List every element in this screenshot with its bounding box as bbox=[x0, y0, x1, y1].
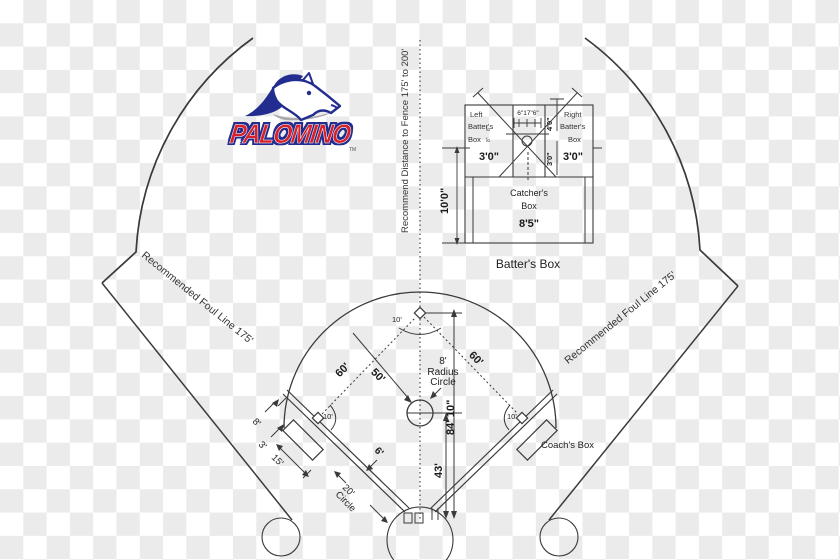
arc-10-third-label: 10' bbox=[323, 413, 333, 421]
inset-plate-ruler bbox=[514, 118, 541, 128]
dim-3ft-left-label: 3'0" bbox=[472, 152, 506, 164]
dim-3ft-right-label: 3'0" bbox=[556, 152, 590, 164]
radius-circle-label: 8' Radius Circle bbox=[420, 357, 466, 389]
horse-eye bbox=[307, 91, 311, 95]
right-batter-box-line3: Box bbox=[568, 136, 581, 144]
trademark-symbol: TM bbox=[349, 148, 356, 153]
plate-side-a-label: 8" bbox=[487, 126, 492, 131]
width-8ft5-label: 8'5" bbox=[504, 219, 554, 231]
palomino-horse-logo bbox=[243, 72, 347, 126]
baseball-field-diagram bbox=[0, 0, 840, 560]
catcher-box-line2: Box bbox=[504, 202, 554, 211]
home-batter-box-right bbox=[415, 513, 423, 523]
dim-4ft-label: 4'0" bbox=[546, 117, 554, 131]
arc-10-second-label: 10' bbox=[392, 316, 402, 324]
ondeck-circle-right bbox=[540, 518, 578, 556]
ondeck-circle-left bbox=[262, 518, 300, 556]
plate-widths-label: 6"17"6" bbox=[511, 111, 545, 118]
inset-plate-circle bbox=[522, 136, 532, 146]
plate-side-b-label: 8" bbox=[487, 137, 492, 142]
home-batter-box-left bbox=[404, 513, 412, 523]
fence-right bbox=[585, 38, 738, 286]
right-batter-box-line1: Right bbox=[564, 111, 582, 119]
inset-title: Batter's Box bbox=[478, 258, 578, 271]
coach-box-label: Coach's Box bbox=[541, 441, 594, 451]
left-batter-box-line3: Box bbox=[468, 136, 481, 144]
baseline-third-second bbox=[322, 317, 416, 414]
dim-3ft-center-label: 3'0" bbox=[546, 152, 554, 166]
second-base-marker bbox=[414, 307, 425, 318]
fence-distance-note: Recommend Distance to Fence 175' to 200' bbox=[401, 49, 411, 233]
catcher-box-line1: Catcher's bbox=[504, 189, 554, 198]
field-diagram-page: PALOMINO TM Recommend Distance to Fence … bbox=[0, 0, 840, 560]
palomino-wordmark: PALOMINO bbox=[224, 119, 356, 150]
radius-circle-line3: Circle bbox=[420, 378, 466, 389]
home-circle bbox=[387, 507, 453, 560]
right-batter-box-line2: Batter's bbox=[560, 123, 585, 131]
radius-leader-arrow bbox=[430, 391, 437, 399]
dim-50-line bbox=[353, 333, 409, 399]
radius-circle-line1: 8' bbox=[420, 357, 466, 368]
left-batter-box-line1: Left bbox=[470, 111, 483, 119]
horse-head bbox=[273, 80, 340, 120]
foul-line-right bbox=[549, 286, 738, 520]
foul-line-left bbox=[102, 283, 292, 520]
fence-left bbox=[102, 38, 253, 283]
pitching-distance-label: 43' bbox=[434, 463, 446, 478]
dim-50-arrow bbox=[404, 395, 412, 403]
inset-diagonal-b bbox=[499, 93, 577, 177]
third-base-marker bbox=[312, 412, 323, 423]
first-base-marker bbox=[516, 412, 527, 423]
arc-10-first-label: 10' bbox=[507, 413, 517, 421]
dim-10ft-label: 10'0" bbox=[440, 188, 452, 214]
inset-diagonal-ticks bbox=[473, 88, 582, 97]
coach-box-left bbox=[283, 420, 323, 460]
dim-84-arrow-bottom bbox=[451, 511, 457, 519]
ondeck-leader-bottom bbox=[370, 505, 385, 520]
home-to-second-label: 84' 10" bbox=[446, 400, 458, 435]
